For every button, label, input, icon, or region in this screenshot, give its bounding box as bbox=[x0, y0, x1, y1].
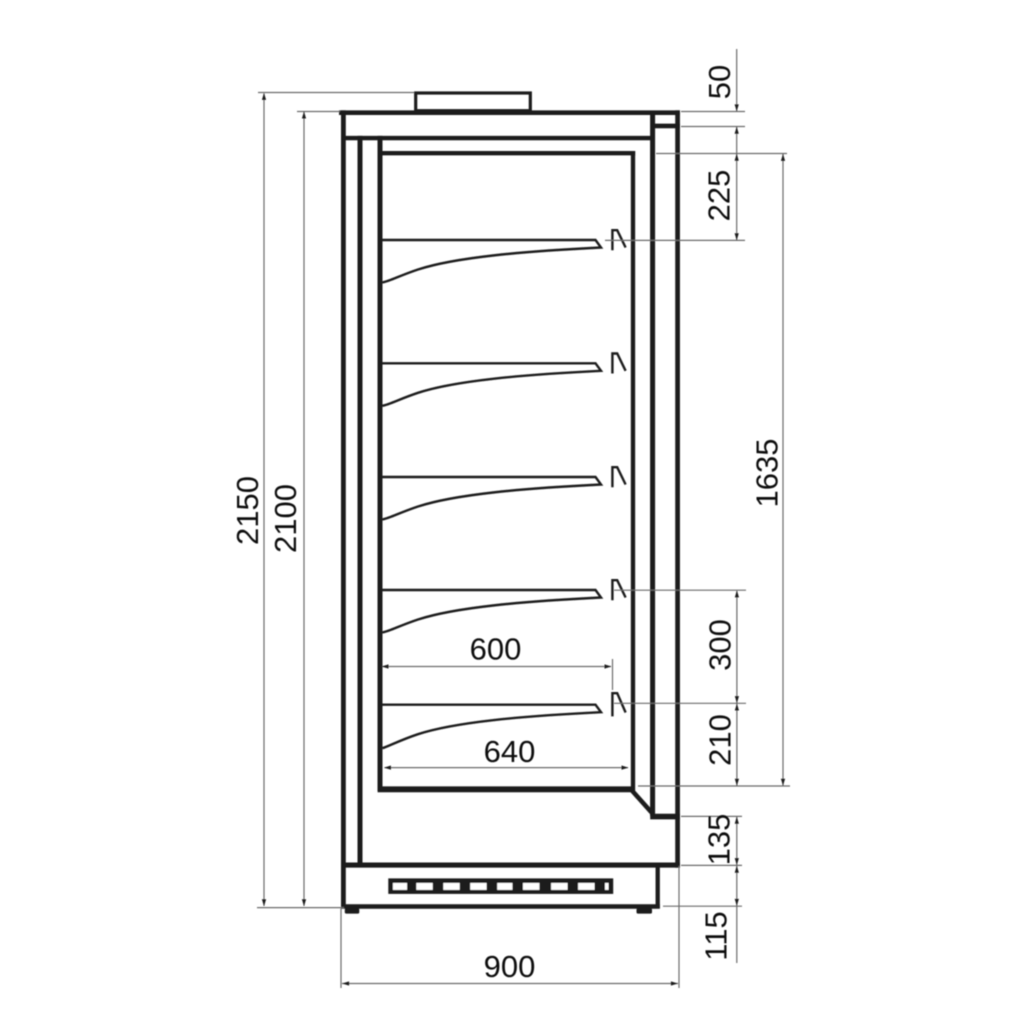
svg-text:225: 225 bbox=[702, 170, 737, 222]
svg-text:2100: 2100 bbox=[268, 484, 303, 553]
svg-text:300: 300 bbox=[703, 619, 738, 671]
svg-text:1635: 1635 bbox=[750, 439, 785, 508]
svg-text:210: 210 bbox=[703, 714, 738, 766]
svg-text:640: 640 bbox=[484, 734, 536, 769]
svg-text:2150: 2150 bbox=[230, 476, 265, 545]
svg-text:135: 135 bbox=[702, 814, 737, 866]
svg-text:115: 115 bbox=[699, 911, 734, 960]
svg-text:900: 900 bbox=[484, 949, 536, 984]
svg-text:600: 600 bbox=[470, 632, 522, 667]
svg-text:50: 50 bbox=[702, 65, 737, 99]
